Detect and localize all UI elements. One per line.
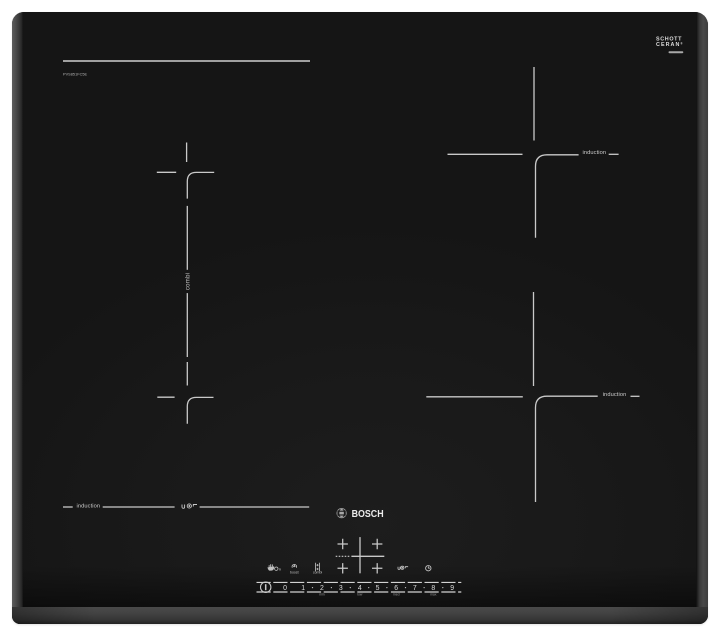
svg-text:1: 1 <box>301 585 305 592</box>
svg-text:8: 8 <box>431 585 435 592</box>
svg-text:PVS851FC5E: PVS851FC5E <box>63 73 88 77</box>
svg-text:med: med <box>393 593 400 597</box>
svg-text:CERAN®: CERAN® <box>656 42 684 49</box>
svg-text:2: 2 <box>320 585 324 592</box>
svg-text:7: 7 <box>413 585 417 592</box>
svg-text:max: max <box>430 593 437 597</box>
svg-text:0: 0 <box>283 585 287 592</box>
svg-text:3: 3 <box>339 585 343 592</box>
svg-text:induction: induction <box>77 504 101 510</box>
svg-text:boost: boost <box>290 571 299 575</box>
svg-text:low: low <box>357 593 363 597</box>
svg-text:combi: combi <box>313 571 323 575</box>
svg-text:min: min <box>319 593 325 597</box>
svg-text:9: 9 <box>450 585 454 592</box>
svg-text:combi: combi <box>185 273 191 291</box>
svg-text:n: n <box>279 567 281 572</box>
svg-text:6: 6 <box>394 585 398 592</box>
svg-text:induction: induction <box>583 150 607 156</box>
svg-text:induction: induction <box>603 392 627 398</box>
svg-text:BOSCH: BOSCH <box>352 509 384 520</box>
svg-text:5: 5 <box>376 585 380 592</box>
svg-text:4: 4 <box>358 585 362 592</box>
